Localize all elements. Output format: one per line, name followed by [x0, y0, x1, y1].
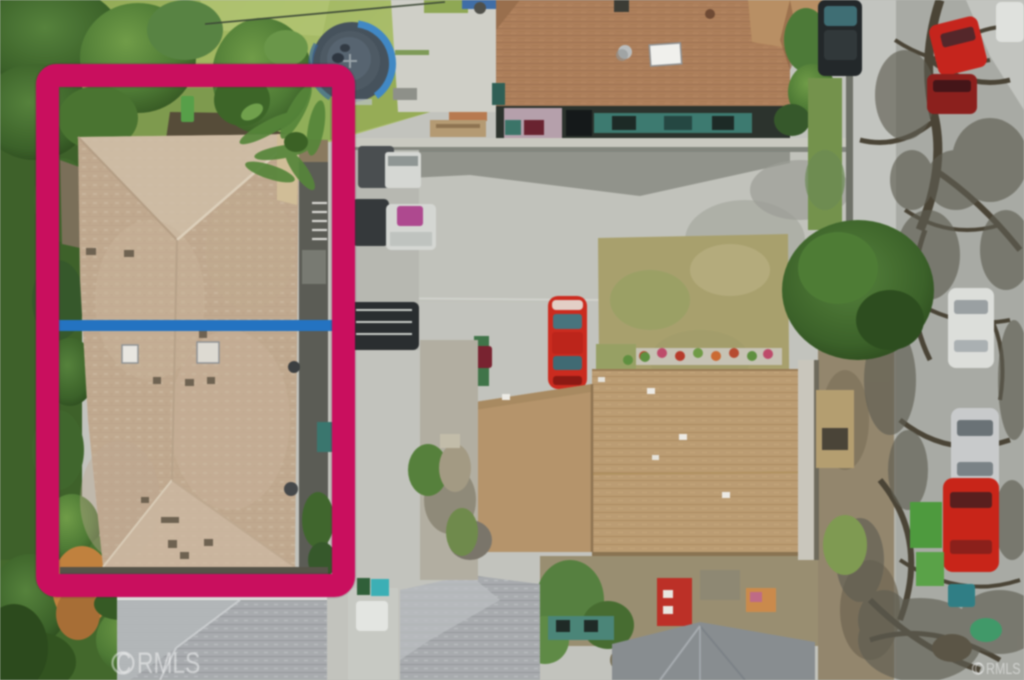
svg-text:C: C: [116, 648, 131, 680]
svg-text:RMLS: RMLS: [986, 661, 1021, 679]
svg-text:RMLS: RMLS: [137, 646, 200, 680]
svg-text:C: C: [975, 659, 983, 677]
